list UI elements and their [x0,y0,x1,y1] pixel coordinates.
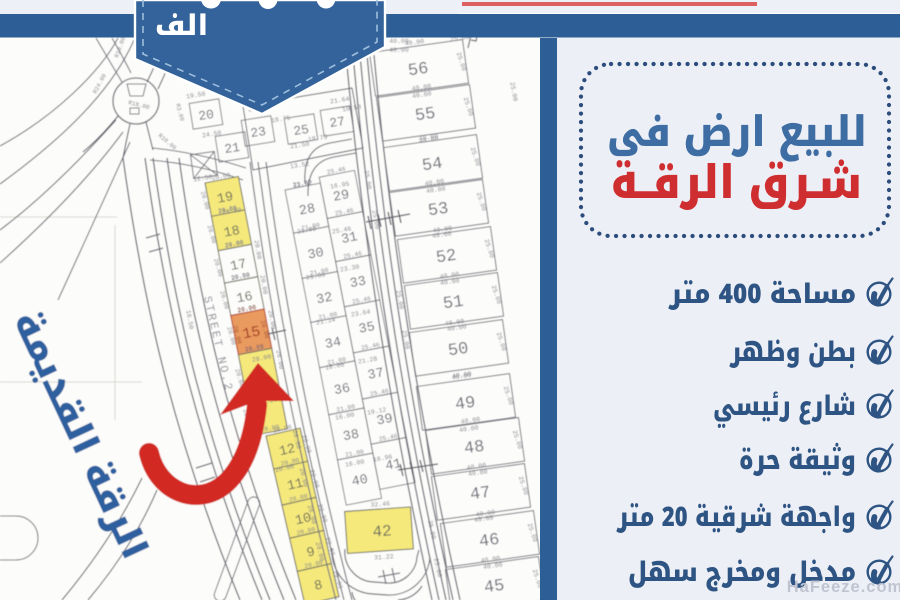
svg-text:29: 29 [332,188,351,206]
svg-text:45: 45 [483,577,506,599]
svg-text:42: 42 [372,522,392,541]
svg-text:33: 33 [349,274,368,292]
svg-text:52: 52 [435,247,458,269]
svg-text:40.00: 40.00 [389,47,409,54]
svg-text:31.22: 31.22 [374,553,394,561]
svg-text:37: 37 [367,366,386,384]
svg-text:30: 30 [307,246,326,264]
svg-text:48: 48 [463,438,486,460]
svg-text:HaFeeze.com: HaFeeze.com [787,578,900,596]
svg-text:56: 56 [407,60,430,82]
svg-text:15: 15 [241,323,262,343]
svg-text:46: 46 [478,531,501,553]
svg-text:27: 27 [328,114,346,131]
svg-text:40.00: 40.00 [389,38,409,45]
svg-text:55: 55 [414,105,437,127]
svg-text:40: 40 [351,473,370,491]
svg-text:36: 36 [333,381,352,399]
svg-text:51: 51 [442,293,465,315]
svg-text:35: 35 [358,320,377,338]
svg-text:50: 50 [447,340,470,362]
svg-text:23: 23 [249,124,267,141]
svg-text:34: 34 [324,335,343,353]
svg-text:49: 49 [454,394,477,416]
svg-text:21: 21 [223,140,241,157]
svg-text:32.46: 32.46 [370,500,390,508]
svg-text:38: 38 [342,427,361,445]
svg-text:47: 47 [469,484,492,506]
svg-text:28: 28 [298,202,317,220]
svg-text:53: 53 [427,200,450,222]
svg-text:54: 54 [421,155,444,177]
svg-text:20: 20 [197,107,215,124]
svg-text:32: 32 [315,291,334,309]
